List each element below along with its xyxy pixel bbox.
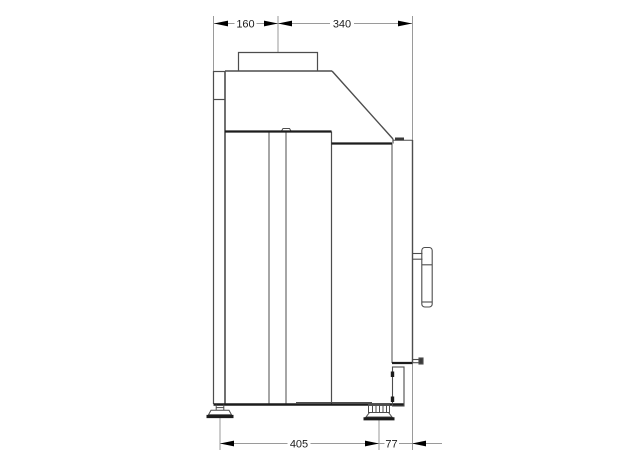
sloped-top xyxy=(332,71,393,139)
dimension-lines xyxy=(214,24,442,444)
boiler-side-view-drawing: 160 340 405 77 xyxy=(0,0,624,460)
dim-label-340: 340 xyxy=(333,19,351,31)
arrow-405-left xyxy=(220,441,234,447)
arrow-340-left xyxy=(278,21,292,27)
front-foot xyxy=(364,405,395,419)
hinge-lower xyxy=(391,397,394,403)
front-foot-cone xyxy=(366,413,392,418)
drain-spigot-stem xyxy=(413,360,420,363)
boiler-body xyxy=(214,53,413,405)
drain-spigot-cap xyxy=(419,358,423,364)
arrow-160-right xyxy=(264,21,278,27)
lower-front-details xyxy=(296,358,423,406)
damper-tab xyxy=(395,138,404,141)
lower-door-box xyxy=(393,367,405,406)
arrow-340-right xyxy=(398,21,412,27)
dimension-labels: 160 340 405 77 xyxy=(236,19,397,451)
dim-label-405: 405 xyxy=(290,439,308,451)
dim-label-160: 160 xyxy=(236,19,254,31)
flue-collar xyxy=(239,53,318,72)
arrow-77-outside xyxy=(412,441,426,447)
dim-label-77: 77 xyxy=(385,439,397,451)
rear-foot-cone xyxy=(209,410,232,415)
arrow-405-right xyxy=(365,441,379,447)
rear-foot xyxy=(207,405,234,417)
arrow-160-left xyxy=(214,21,228,27)
drawing-canvas: 160 340 405 77 xyxy=(0,0,624,460)
dimension-arrows xyxy=(214,21,426,447)
handle-bar xyxy=(422,248,432,308)
hinge-upper xyxy=(391,372,394,378)
door-handle xyxy=(413,248,433,308)
dimension-extension-lines xyxy=(214,16,413,450)
heavy-edges xyxy=(214,132,413,405)
